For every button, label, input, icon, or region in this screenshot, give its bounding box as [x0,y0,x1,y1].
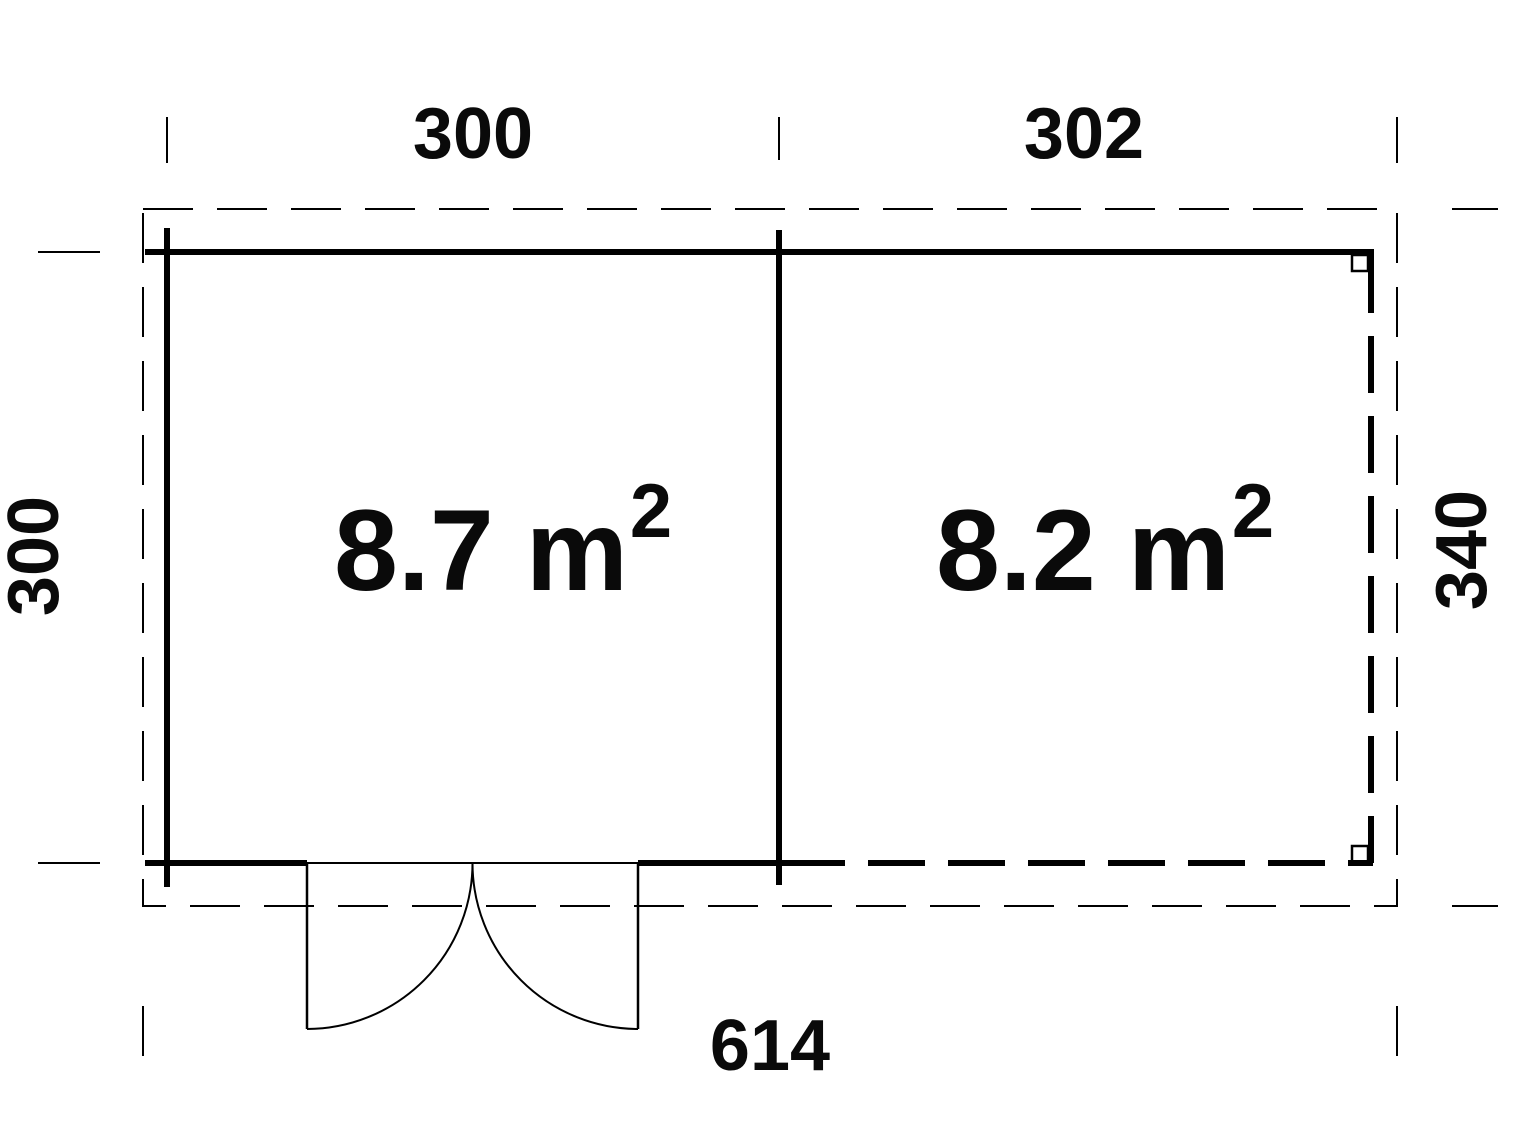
floor-plan-drawing: 300 302 300 340 614 8.7 m 2 8.2 m 2 [0,0,1530,1124]
room-area-label-right: 8.2 m [936,487,1230,615]
dim-label-bottom: 614 [710,1006,830,1086]
dim-label-right: 340 [1422,490,1502,610]
room-area-label-left: 8.7 m [334,487,628,615]
door-swing-arc-left [307,863,473,1029]
dim-label-top-right: 302 [1024,94,1144,174]
dim-label-left: 300 [0,496,74,616]
corner-post-top-right [1352,255,1368,271]
corner-post-bottom-right [1352,846,1368,862]
room-area-exponent-left: 2 [630,469,672,554]
dim-label-top-left: 300 [413,94,533,174]
floor-plan-page: 300 302 300 340 614 8.7 m 2 8.2 m 2 [0,0,1530,1124]
room-area-exponent-right: 2 [1232,469,1274,554]
door-swing-arc-right [473,863,639,1029]
